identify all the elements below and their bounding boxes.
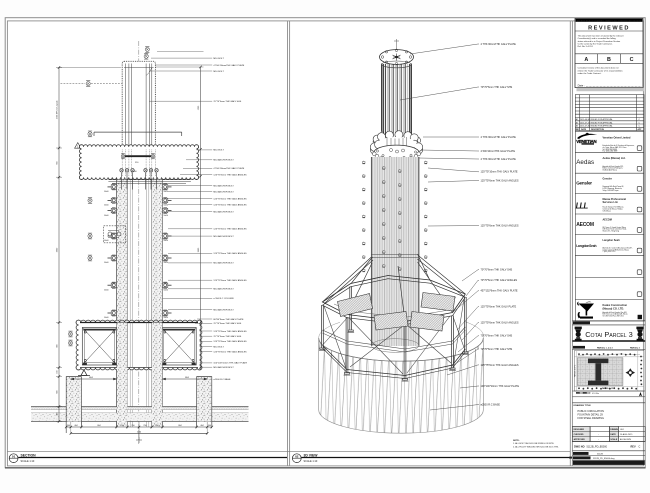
svg-text:50x50: 50x50: [104, 191, 109, 193]
svg-text:4 THK 90mmTHK GALV PLATE: 4 THK 90mmTHK GALV PLATE: [213, 64, 244, 67]
svg-text:5.4 for action by the Trade Co: 5.4 for action by the Trade Contractor.: [578, 43, 613, 46]
svg-text:50x50: 50x50: [164, 215, 169, 217]
svg-text:250: 250: [120, 425, 123, 427]
svg-text:2. ALL FILLET WELDED SHOULD BE: 2. ALL FILLET WELDED SHOULD BE 3mm THK.: [513, 445, 559, 448]
svg-text:NOTE:: NOTE:: [513, 440, 520, 442]
svg-text:M10 ANCHOR BOLT: M10 ANCHOR BOLT: [213, 235, 234, 238]
svg-text:125*75*6mm THK GALV ANGLES: 125*75*6mm THK GALV ANGLES: [481, 179, 519, 182]
svg-text:C: C: [639, 445, 641, 448]
svg-text:125*75*6mm THK GALV ANGLES: 125*75*6mm THK GALV ANGLES: [213, 330, 247, 333]
svg-text:M10 ANCHOR BOLT: M10 ANCHOR BOLT: [213, 191, 234, 194]
svg-text:M10 ANCHOR BOLT: M10 ANCHOR BOLT: [213, 159, 234, 162]
svg-text:M10 ANCHOR BOLT: M10 ANCHOR BOLT: [213, 262, 234, 265]
svg-text:200: 200: [208, 425, 211, 427]
svg-text:A3: A3: [576, 125, 578, 128]
svg-text:M10 ANCHOR BOLT: M10 ANCHOR BOLT: [213, 210, 234, 213]
svg-text:50x50: 50x50: [164, 262, 169, 264]
svg-text:SCALE 1:10: SCALE 1:10: [304, 460, 318, 463]
svg-text:50x50: 50x50: [164, 289, 169, 291]
svg-text:125*75*6mm THK GALV ANGLES: 125*75*6mm THK GALV ANGLES: [213, 340, 247, 343]
svg-text:Fax: (853) 2882 8889: Fax: (853) 2882 8889: [603, 151, 618, 153]
svg-text:LEO: LEO: [620, 429, 624, 431]
svg-text:B: B: [607, 57, 611, 63]
svg-text:250: 250: [131, 425, 134, 427]
svg-text:C: C: [630, 57, 634, 63]
svg-text:M10 BOLT: M10 BOLT: [213, 71, 224, 73]
svg-text:(Macau) CO. LTD.: (Macau) CO. LTD.: [603, 306, 625, 310]
svg-text:APPROVED: APPROVED: [574, 438, 586, 441]
svg-text:50x50: 50x50: [104, 240, 109, 242]
svg-text:125*75*6mm THK GALV ANGLES: 125*75*6mm THK GALV ANGLES: [213, 279, 247, 282]
svg-text:T (853) 2833 1710: T (853) 2833 1710: [603, 251, 616, 253]
svg-text:02: 02: [295, 454, 299, 458]
svg-text:M10 ANCHOR BOLT: M10 ANCHOR BOLT: [213, 308, 234, 311]
svg-text:Tel: 2837 2323 Fax: 2837 2311: Tel: 2837 2323 Fax: 2837 2311: [603, 316, 624, 318]
svg-text:KEY PLAN: KEY PLAN: [574, 346, 584, 349]
svg-text:PARCEL 1 OF 3: PARCEL 1 OF 3: [602, 387, 614, 390]
svg-text:Consultant review of this docu: Consultant review of this document does …: [578, 67, 619, 70]
svg-text:LangdonSeah: LangdonSeah: [576, 244, 596, 248]
svg-text:864: 864: [97, 425, 100, 427]
svg-text:5112B_PD_B5000.dwg: 5112B_PD_B5000.dwg: [593, 458, 615, 460]
svg-text:50x50: 50x50: [164, 240, 169, 242]
svg-text:ø2500 R.C BASE: ø2500 R.C BASE: [213, 378, 231, 381]
svg-text:AECOM: AECOM: [603, 218, 612, 221]
svg-text:2015-07-30: 2015-07-30: [580, 126, 590, 128]
svg-text:M10 BOLT: M10 BOLT: [213, 150, 224, 152]
svg-text:70*70*6mm THK GALV SHS: 70*70*6mm THK GALV SHS: [213, 322, 241, 325]
svg-text:125*75*6mm THK GALV PLATE: 125*75*6mm THK GALV PLATE: [481, 306, 517, 309]
svg-text:ISSUED FOR APPROVAL: ISSUED FOR APPROVAL: [591, 118, 613, 121]
svg-text:SECTION: SECTION: [21, 453, 37, 457]
svg-text:AS SHOWN: AS SHOWN: [620, 438, 631, 441]
svg-text:50x50: 50x50: [164, 205, 169, 207]
svg-text:50x50: 50x50: [104, 205, 109, 207]
svg-text:ISSUED FOR APPROVAL: ISSUED FOR APPROVAL: [591, 121, 613, 124]
svg-text:200: 200: [67, 425, 70, 427]
svg-text:Ref. No. 5.4-151: Ref. No. 5.4-151: [578, 46, 594, 48]
svg-text:250: 250: [155, 425, 158, 427]
svg-text:A2: A2: [576, 121, 578, 124]
svg-text:125*75*6mm THK GALV ANGLES: 125*75*6mm THK GALV ANGLES: [213, 197, 247, 200]
svg-text:125*75*6mm THK GALV ANGLES: 125*75*6mm THK GALV ANGLES: [213, 228, 247, 231]
svg-text:864: 864: [178, 425, 181, 427]
svg-text:FOR STEEL DRAWING: FOR STEEL DRAWING: [578, 417, 605, 420]
svg-text:DESIGNED: DESIGNED: [574, 429, 585, 431]
svg-text:14-AUG-2015: 14-AUG-2015: [620, 433, 633, 436]
svg-text:CAD FILE NAME: CAD FILE NAME: [574, 457, 590, 460]
svg-text:4 THK 90mmTHK GALV PLATE: 4 THK 90mmTHK GALV PLATE: [481, 43, 517, 46]
svg-text:4 500 90mmTHK GALV PLATE: 4 500 90mmTHK GALV PLATE: [481, 150, 516, 153]
svg-text:50x50: 50x50: [164, 317, 169, 319]
svg-text:Aedas (Macau) Ltd.: Aedas (Macau) Ltd.: [603, 157, 626, 160]
svg-text:4 THK 90mmTHK GALV PLATE: 4 THK 90mmTHK GALV PLATE: [213, 167, 244, 170]
svg-text:4 THK 90mmTHK GALV PLATE: 4 THK 90mmTHK GALV PLATE: [481, 136, 517, 139]
svg-text:70*70*6mm THK GALV ANGLES: 70*70*6mm THK GALV ANGLES: [481, 279, 518, 282]
svg-text:Aedas: Aedas: [576, 159, 594, 166]
svg-text:125*75*6mm THK GALV ANGLES: 125*75*6mm THK GALV ANGLES: [213, 204, 247, 207]
svg-text:50x50: 50x50: [104, 289, 109, 291]
svg-text:status referred to in Project: status referred to in Project Procedure …: [578, 40, 621, 43]
svg-text:A1: A1: [576, 118, 578, 121]
svg-text:70*70*6mm THK GALV SHS: 70*70*6mm THK GALV SHS: [481, 348, 513, 351]
svg-text:4 THK 90mmTHK GALV PLATE: 4 THK 90mmTHK GALV PLATE: [481, 158, 517, 161]
svg-text:125*75*6mm THK GALV ANGLES: 125*75*6mm THK GALV ANGLES: [481, 322, 519, 325]
svg-text:70*70*6mm THK GALV SHS: 70*70*6mm THK GALV SHS: [213, 100, 241, 103]
svg-text:Date :: Date :: [578, 84, 585, 88]
svg-text:REV: REV: [631, 445, 636, 448]
svg-text:3D VIEW: 3D VIEW: [304, 453, 319, 457]
svg-text:125*75*6mm THK GALV ANGLES: 125*75*6mm THK GALV ANGLES: [213, 173, 247, 176]
svg-text:Venetian Orient Limited: Venetian Orient Limited: [603, 137, 631, 140]
svg-text:125*75*10mm THK GALV PLATE: 125*75*10mm THK GALV PLATE: [481, 171, 518, 174]
svg-text:DRAWN: DRAWN: [610, 428, 618, 431]
svg-text:SCALE 1:10: SCALE 1:10: [21, 460, 35, 463]
svg-text:2015-07-15: 2015-07-15: [580, 122, 590, 124]
svg-text:M10 BOLT: M10 BOLT: [213, 346, 224, 348]
svg-text:125*75*6mm THK GALV ANGLES: 125*75*6mm THK GALV ANGLES: [481, 225, 519, 228]
svg-text:VENETIAN: VENETIAN: [576, 139, 596, 144]
svg-text:Tel: (853) 2882 8888: Tel: (853) 2882 8888: [603, 149, 617, 151]
svg-text:Consultants(s) and is accorded: Consultants(s) and is accorded the folli…: [578, 37, 617, 40]
svg-text:464: 464: [200, 425, 203, 427]
svg-text:50x50: 50x50: [164, 191, 169, 193]
svg-text:5112B_PD_B5000: 5112B_PD_B5000: [587, 445, 608, 448]
svg-text:V-W, Macau: V-W, Macau: [603, 210, 611, 212]
svg-text:DWG NO: DWG NO: [574, 445, 585, 448]
svg-text:125*75*6mm THK GALV ANGLES: 125*75*6mm THK GALV ANGLES: [481, 364, 519, 367]
svg-text:M10 ANCHOR BOLT: M10 ANCHOR BOLT: [213, 185, 234, 188]
svg-text:relieve the Trade Contractor o: relieve the Trade Contractor of its resp…: [578, 69, 623, 72]
svg-text:464: 464: [74, 425, 77, 427]
svg-text:457*152*6mm THK GALV PLATE: 457*152*6mm THK GALV PLATE: [481, 290, 518, 293]
svg-text:70*70*6mm THK GALV SHS: 70*70*6mm THK GALV SHS: [481, 335, 513, 338]
svg-text:A: A: [584, 57, 588, 63]
svg-text:JOB NUMBER: JOB NUMBER: [574, 453, 588, 455]
svg-text:SCALE: SCALE: [610, 438, 617, 441]
svg-text:ø2500 R.C BASE: ø2500 R.C BASE: [481, 404, 501, 407]
svg-text:125*75*6mm THK GALV ANGLES: 125*75*6mm THK GALV ANGLES: [213, 351, 247, 354]
svg-text:ISSUED FOR APPROVAL: ISSUED FOR APPROVAL: [591, 125, 613, 128]
svg-text:DATE: DATE: [610, 433, 616, 436]
svg-text:50x50: 50x50: [104, 262, 109, 264]
svg-text:PARCEL 1 OF 3: PARCEL 1 OF 3: [573, 365, 576, 377]
svg-text:0 10 20m: 0 10 20m: [592, 393, 600, 395]
svg-text:REVIEWED: REVIEWED: [588, 25, 630, 31]
svg-text:Langdon Seah: Langdon Seah: [603, 239, 621, 242]
svg-text:M10 ANCHOR BOLT: M10 ANCHOR BOLT: [213, 366, 234, 369]
svg-text:REFERENCE CAD FILE NAME: REFERENCE CAD FILE NAME: [574, 462, 603, 465]
svg-text:70*70*6mm THK GALV SHS: 70*70*6mm THK GALV SHS: [213, 335, 241, 338]
svg-text:DO NOT SCALE DRAWING. VERIFY A: DO NOT SCALE DRAWING. VERIFY ALL DIMENSI…: [577, 19, 642, 22]
svg-text:ø 550 R.C COLUMN: ø 550 R.C COLUMN: [213, 298, 233, 300]
svg-text:2015-06-30: 2015-06-30: [580, 119, 590, 121]
svg-text:M10 BOLT: M10 BOLT: [213, 58, 224, 60]
svg-text:50x50: 50x50: [104, 215, 109, 217]
svg-text:AECOM: AECOM: [576, 222, 594, 228]
svg-text:M10 ANCHOR BOLT: M10 ANCHOR BOLT: [213, 288, 234, 291]
svg-text:This document has been reviewe: This document has been reviewed by the r…: [578, 34, 624, 37]
svg-text:Gensler: Gensler: [576, 181, 592, 186]
svg-text:100*100*10mm THK GALV PLATE: 100*100*10mm THK GALV PLATE: [213, 362, 247, 365]
svg-text:LLL: LLL: [576, 202, 589, 211]
svg-text:CHECKED: CHECKED: [574, 434, 584, 436]
svg-text:PROJECT TITLE: PROJECT TITLE: [574, 323, 589, 325]
svg-text:100*100*10mm THK GALV PLATE: 100*100*10mm THK GALV PLATE: [481, 385, 520, 388]
svg-text:1500 (FFL to Layout): 1500 (FFL to Layout): [55, 100, 58, 119]
svg-text:DATE: DATE: [581, 128, 587, 131]
svg-text:50x50: 50x50: [104, 317, 109, 319]
svg-text:70*70*6mm THK GALV SHS: 70*70*6mm THK GALV SHS: [481, 269, 513, 272]
svg-text:2564: 2564: [137, 431, 141, 433]
svg-text:under the Trade Contract.: under the Trade Contract.: [578, 72, 602, 75]
svg-text:1. ALL BOLT SHOULD BE FIXING O: 1. ALL BOLT SHOULD BE FIXING ON SITE.: [513, 442, 555, 445]
svg-text:PARCEL 3: PARCEL 3: [630, 346, 641, 349]
svg-text:Tokyo, 106-0032 Japan: Tokyo, 106-0032 Japan: [603, 190, 619, 192]
svg-text:Gensler: Gensler: [603, 178, 612, 181]
svg-text:125*75*6mm THK GALV ANGLES: 125*75*6mm THK GALV ANGLES: [213, 252, 247, 255]
svg-text:5112B: 5112B: [597, 454, 603, 456]
svg-text:01: 01: [12, 454, 16, 458]
svg-text:80*80*8mm THK GALV PLATE: 80*80*8mm THK GALV PLATE: [213, 318, 244, 321]
svg-text:70*70*6mm THK GALV SHS: 70*70*6mm THK GALV SHS: [481, 86, 513, 89]
svg-text:PARCEL 1, 2 & 3: PARCEL 1, 2 & 3: [597, 346, 613, 349]
svg-text:250: 250: [143, 425, 146, 427]
svg-text:DRAWING TITLE: DRAWING TITLE: [574, 404, 592, 407]
svg-text:DESCRIPTION: DESCRIPTION: [591, 129, 605, 131]
svg-text:Services Ltd.: Services Ltd.: [603, 201, 619, 204]
